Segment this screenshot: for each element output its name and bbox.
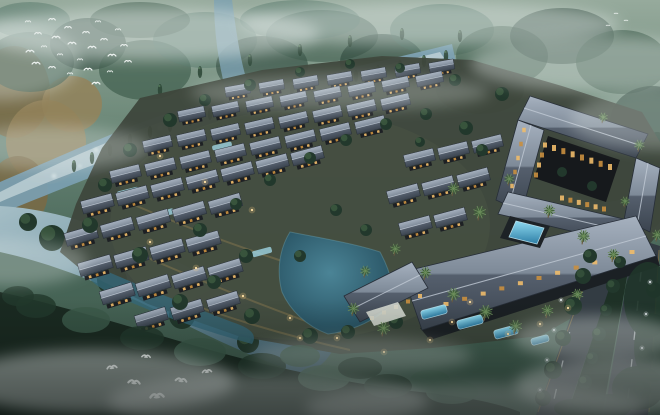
- aerial-scene-canvas: [0, 0, 660, 415]
- resort-aerial-rendering: [0, 0, 660, 415]
- vignette-layer: [0, 0, 660, 415]
- vignette: [0, 0, 660, 415]
